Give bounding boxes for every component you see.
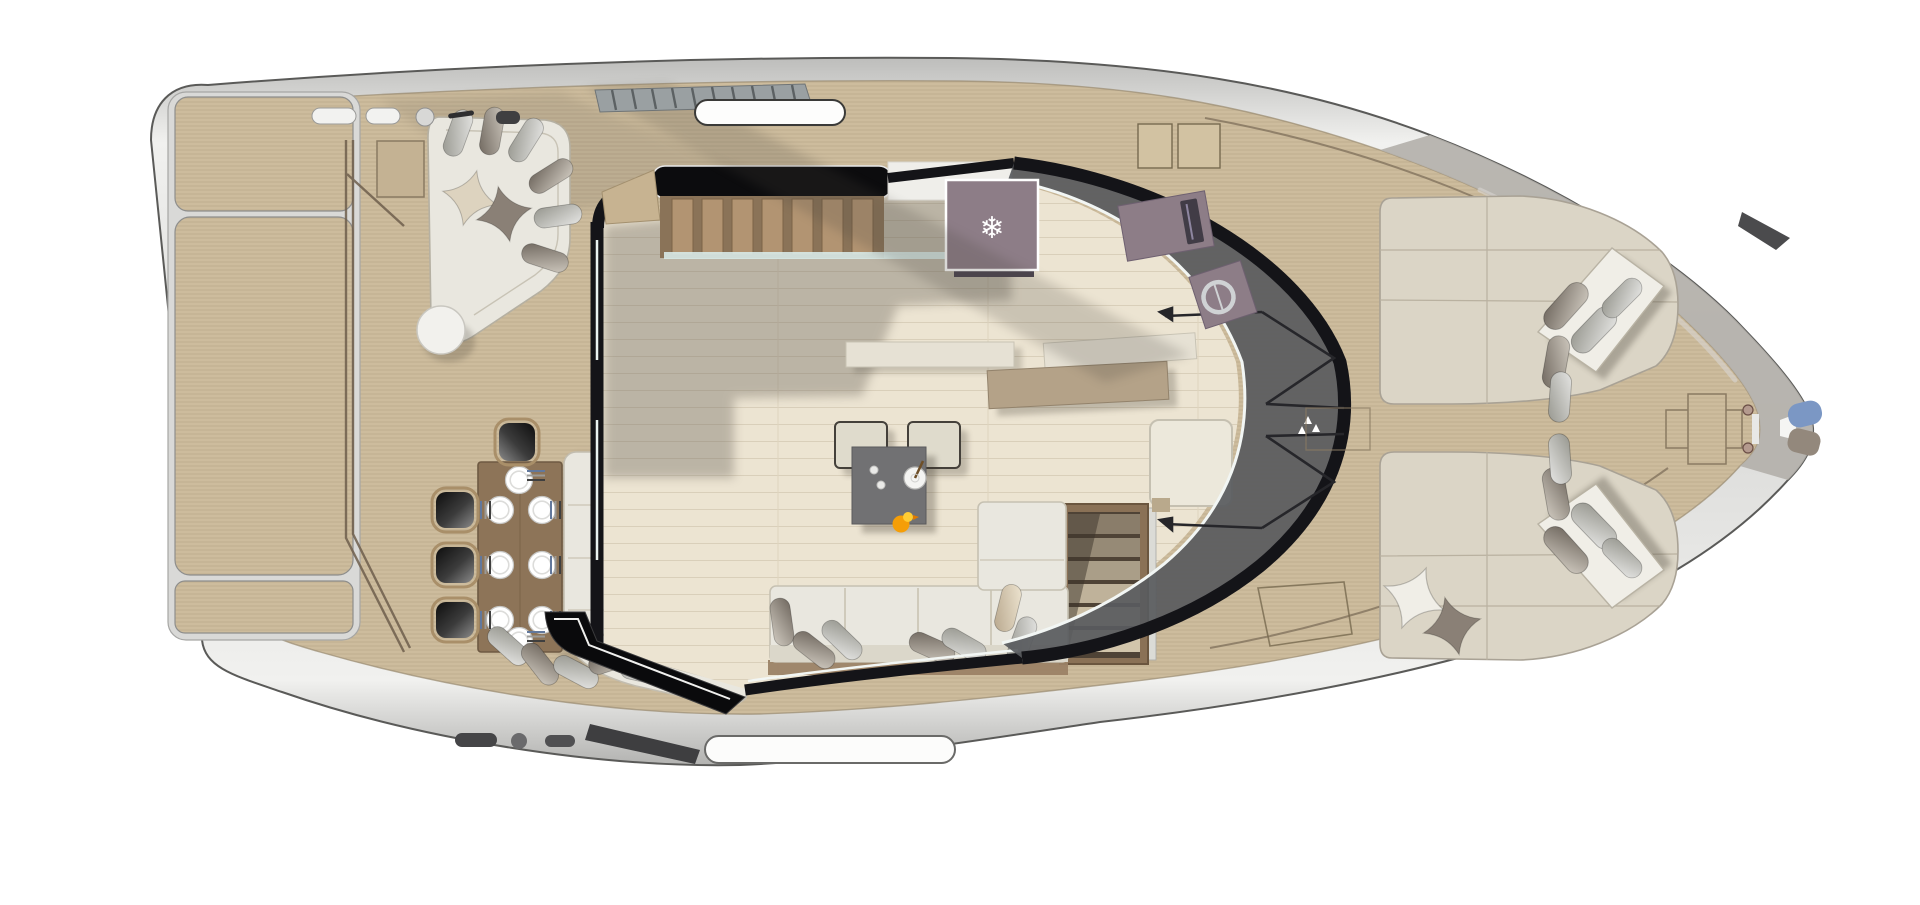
yacht-floorplan: ❄ — [0, 0, 1920, 905]
hatch-hinge — [1743, 405, 1753, 415]
deck-hatch — [1178, 124, 1220, 168]
galley-counter — [846, 342, 1014, 367]
yacht-floorplan-canvas: ❄ — [0, 0, 1920, 905]
swim-platform-panel — [175, 217, 353, 575]
nav-light — [312, 108, 356, 124]
swim-platform-panel — [175, 581, 353, 633]
deck-hatch — [1138, 124, 1172, 168]
deck-fitting — [416, 108, 434, 126]
boarding-step — [705, 736, 955, 763]
deck-fitting — [455, 733, 497, 747]
hatch-hinge — [1743, 443, 1753, 453]
nav-light — [366, 108, 400, 124]
deck-fitting — [496, 111, 520, 124]
helm-seat — [1150, 420, 1232, 506]
cockpit-console-hatch — [377, 141, 424, 197]
windlass-strip — [1752, 414, 1759, 444]
snowflake-icon: ❄ — [979, 211, 1004, 246]
deck-fitting — [511, 733, 527, 749]
sofa-chaise — [978, 502, 1066, 590]
glass — [877, 481, 885, 489]
deck-fitting — [545, 735, 575, 747]
bow-cleat — [1738, 212, 1790, 250]
cockpit-round-table — [417, 306, 465, 354]
hardtop-edge — [695, 100, 845, 125]
helm-seat-base — [1152, 498, 1170, 512]
swim-platform — [168, 92, 360, 640]
glass — [870, 466, 878, 474]
